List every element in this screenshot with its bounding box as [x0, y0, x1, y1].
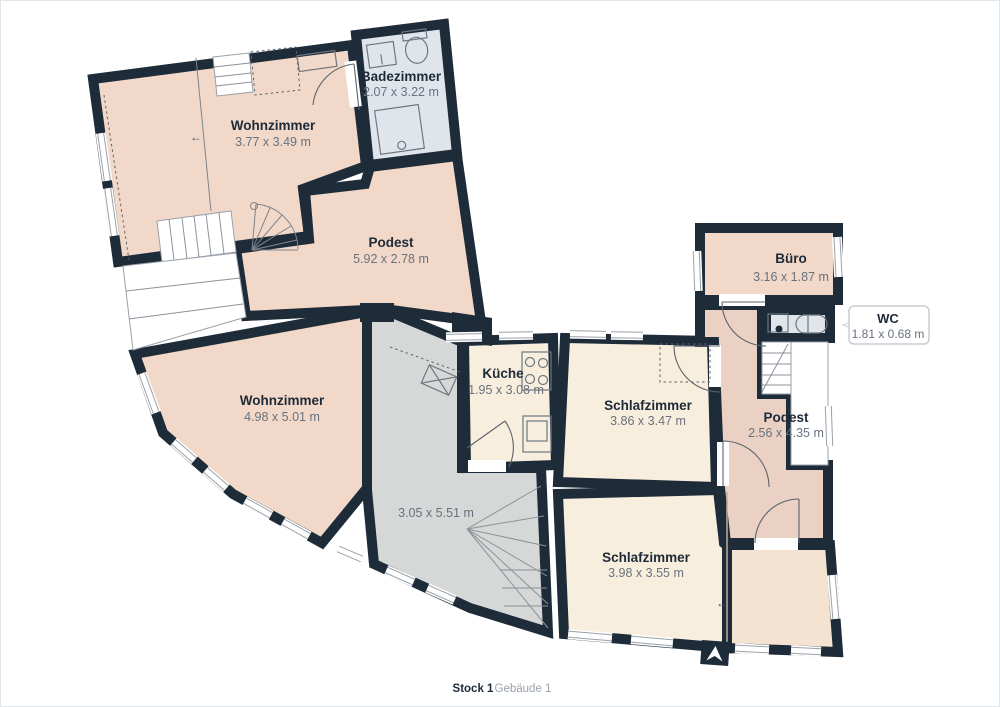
floorplan-page: ← ← Badezimmer 2.07 x 3.22 m Wohnzimmer … — [0, 0, 1000, 707]
door-arrow-left: ← — [190, 130, 202, 144]
room-schlafzimmer-mid-label: Schlafzimmer — [604, 398, 693, 413]
room-podest-left-label: Podest — [368, 235, 414, 250]
building-label: Gebäude 1 — [495, 683, 552, 695]
room-schlafzimmer-mid-dims: 3.86 x 3.47 m — [610, 414, 686, 428]
room-kueche-label: Küche — [482, 366, 524, 381]
door-arrow-right: ← — [716, 596, 728, 610]
room-hall-dims: 3.05 x 5.51 m — [398, 506, 474, 520]
room-wohnzimmer-left-label: Wohnzimmer — [240, 393, 325, 408]
window — [446, 332, 482, 343]
room-podest-right-label: Podest — [763, 410, 809, 425]
room-wohnzimmer-left-dims: 4.98 x 5.01 m — [244, 410, 320, 424]
room-schlafzimmer-bottom-label: Schlafzimmer — [602, 550, 691, 565]
room-kueche-dims: 1.95 x 3.08 m — [468, 383, 544, 397]
window — [691, 251, 702, 291]
wall-patch — [360, 303, 394, 322]
room-wohnzimmer-top-dims: 3.77 x 3.49 m — [235, 135, 311, 149]
window — [832, 237, 844, 277]
room-podest-right-dims: 2.56 x 4.35 m — [748, 426, 824, 440]
room-wohnzimmer-top-label: Wohnzimmer — [231, 118, 316, 133]
room-wc-dims: 1.81 x 0.68 m — [852, 327, 925, 341]
window — [499, 330, 533, 341]
window — [823, 406, 834, 446]
stairwell-void — [791, 342, 828, 465]
room-buero-dims: 3.16 x 1.87 m — [753, 270, 829, 284]
room-buero-area — [700, 228, 838, 300]
drain-dot — [776, 326, 783, 333]
room-podest-left-dims: 5.92 x 2.78 m — [353, 252, 429, 266]
north-arrow-icon — [700, 640, 730, 666]
window — [791, 645, 821, 657]
room-wc-label: WC — [877, 311, 899, 326]
room-buero-label: Büro — [775, 251, 807, 266]
floor-label: Stock 1 — [453, 683, 495, 695]
room-schlafzimmer-bottom-ext-area — [727, 545, 838, 652]
floorplan-canvas: ← ← Badezimmer 2.07 x 3.22 m Wohnzimmer … — [0, 0, 1000, 707]
staircase-right — [762, 342, 791, 394]
window — [611, 330, 643, 341]
room-badezimmer-dims: 2.07 x 3.22 m — [363, 85, 439, 99]
room-kueche-area — [464, 338, 556, 468]
room-schlafzimmer-bottom-dims: 3.98 x 3.55 m — [608, 566, 684, 580]
window — [336, 544, 364, 563]
room-badezimmer-label: Badezimmer — [361, 69, 442, 84]
window — [735, 643, 769, 655]
footer: Stock 1 Gebäude 1 — [453, 683, 552, 695]
window — [570, 329, 606, 340]
wc-callout: WC 1.81 x 0.68 m — [843, 306, 929, 344]
